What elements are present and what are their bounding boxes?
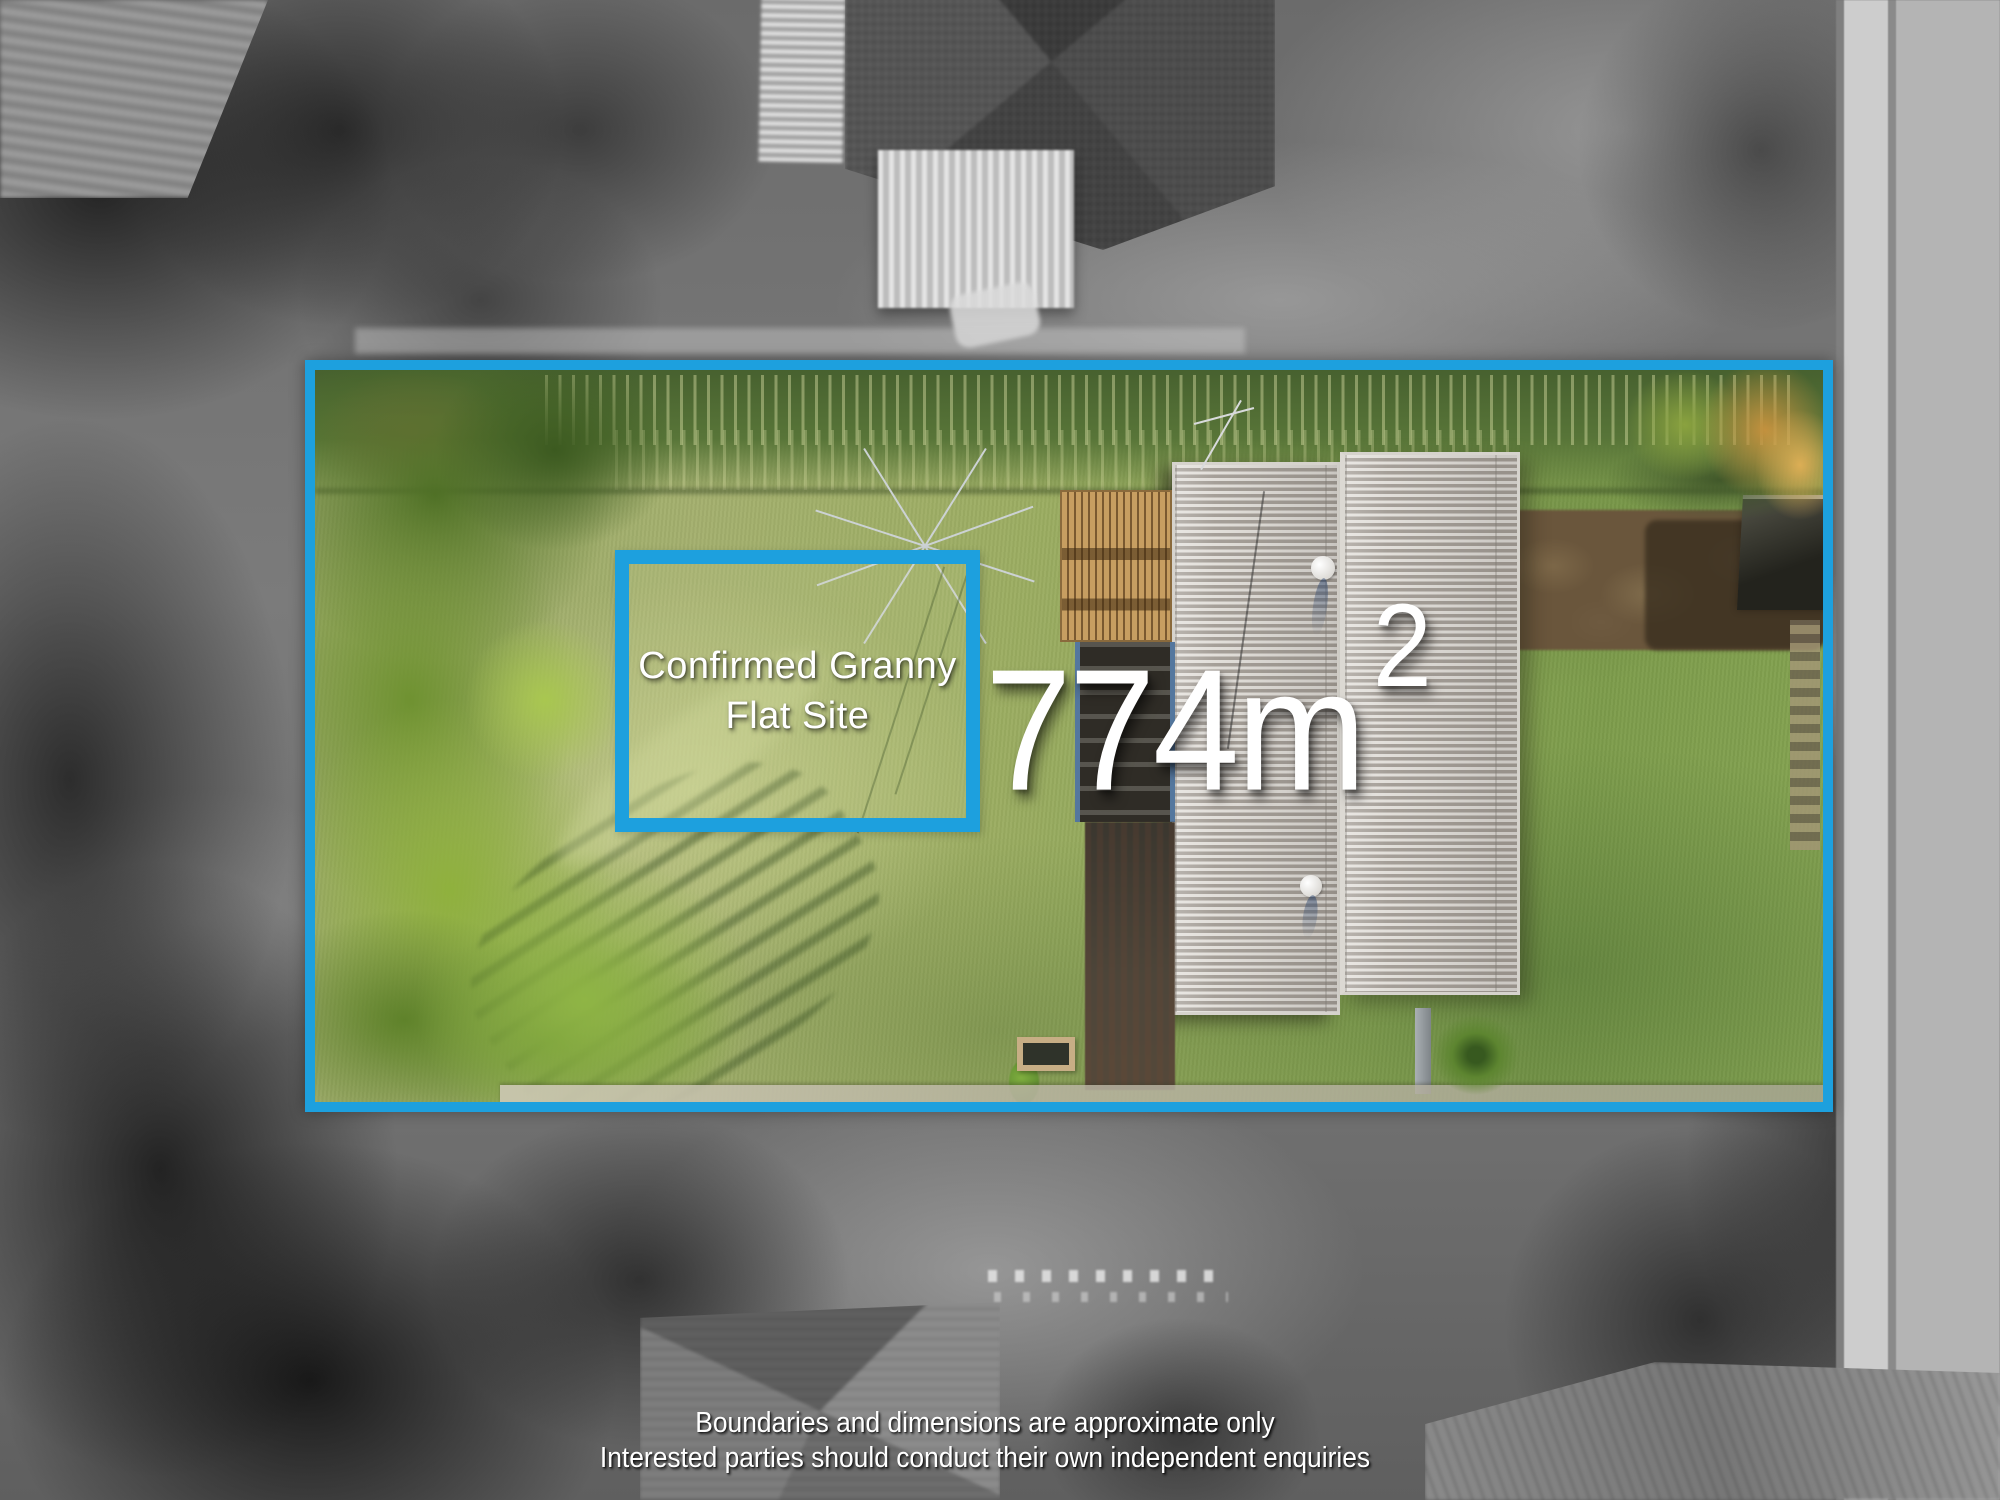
yucca-plant: [1433, 1015, 1519, 1095]
land-area-superscript: 2: [1373, 587, 1432, 705]
aerial-property-photo: Confirmed Granny Flat Site 774m2 Boundar…: [0, 0, 2000, 1500]
street-and-footpath: [1836, 0, 2000, 1500]
neighbor-carport: [878, 150, 1074, 308]
granny-flat-label-line2: Flat Site: [638, 691, 956, 741]
post: [1415, 1008, 1431, 1094]
granny-flat-site-box: Confirmed Granny Flat Site: [615, 550, 980, 832]
granny-flat-site-label: Confirmed Granny Flat Site: [638, 641, 956, 741]
disclaimer-line2: Interested parties should conduct their …: [89, 1441, 1882, 1476]
side-path-dark: [1085, 822, 1175, 1090]
land-area-value: 774m: [985, 633, 1364, 827]
wooden-deck: [1060, 490, 1172, 642]
concrete-path: [500, 1085, 1823, 1103]
tree-canopy: [465, 620, 625, 780]
neighbor-shed-roof: [759, 0, 846, 163]
land-area-label: 774m2: [985, 632, 1432, 817]
rear-lane-path: [355, 328, 1245, 354]
granny-flat-label-line1: Confirmed Granny: [638, 641, 956, 691]
side-fence: [1790, 620, 1820, 850]
disclaimer-text: Boundaries and dimensions are approximat…: [89, 1406, 1882, 1476]
disclaimer-line1: Boundaries and dimensions are approximat…: [89, 1406, 1882, 1441]
planter-box: [1017, 1037, 1075, 1071]
roof-vent: [1311, 556, 1335, 580]
neighbor-yard-clothesline: [988, 1270, 1228, 1306]
roof-vent: [1300, 875, 1322, 897]
